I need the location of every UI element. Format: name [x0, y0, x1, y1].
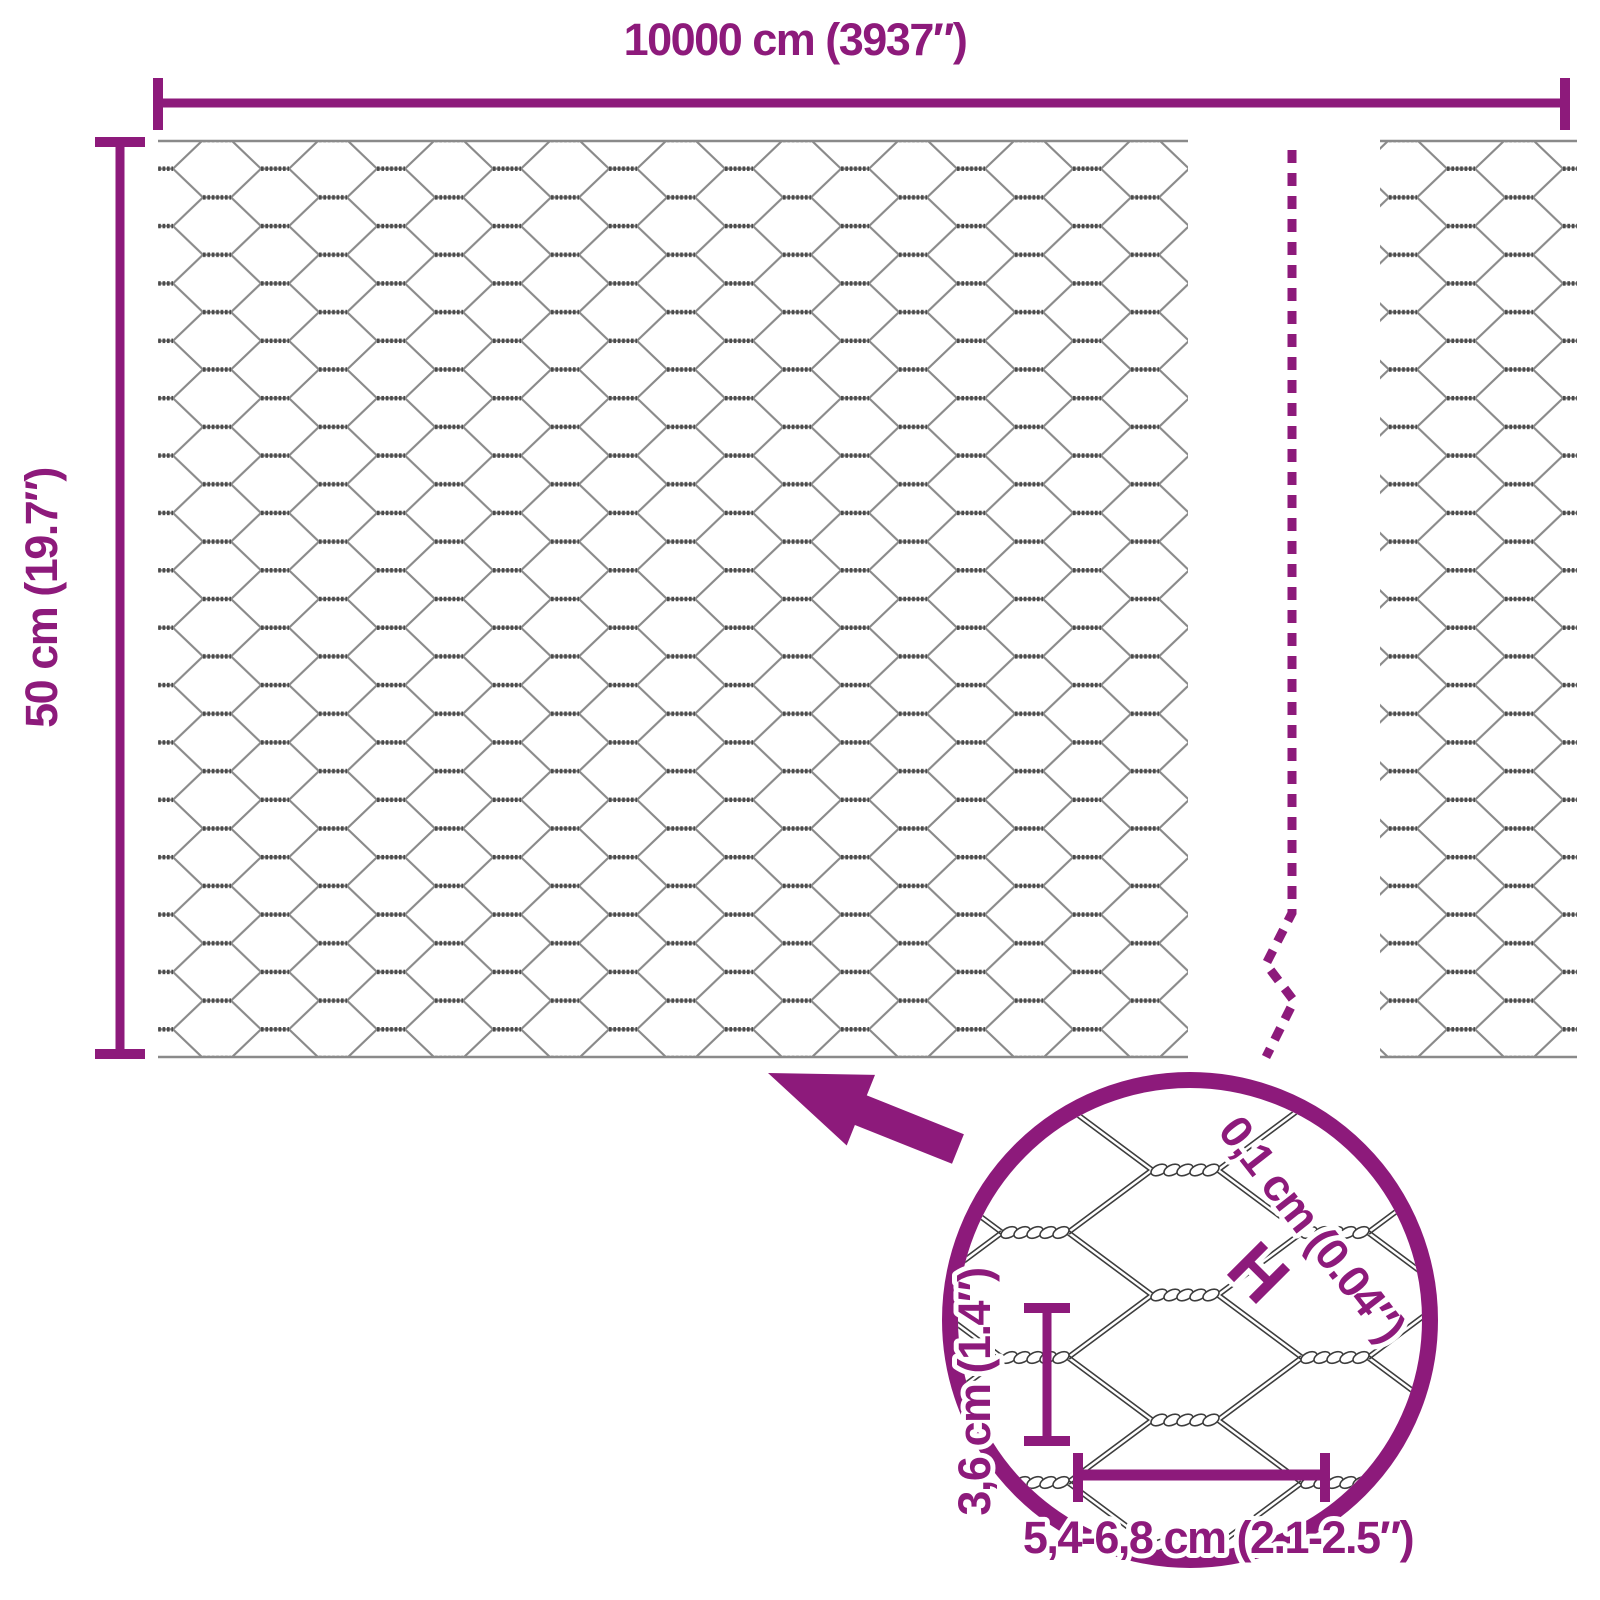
- product-dimension-diagram: 10000 cm (3937″) 50 cm (19.7″) 3,6 cm (1…: [0, 0, 1600, 1600]
- mesh-panel-left: [158, 140, 1188, 1058]
- length-break-line: [1266, 150, 1294, 1057]
- roll-height-label: 50 cm (19.7″): [16, 468, 67, 728]
- mesh-pattern-left: [158, 140, 1188, 1058]
- mesh-width-label: 5,4-6,8 cm (2.1-2.5″): [1023, 1512, 1413, 1563]
- diagram-canvas: 10000 cm (3937″) 50 cm (19.7″) 3,6 cm (1…: [0, 0, 1600, 1600]
- total-width-label: 10000 cm (3937″): [624, 14, 967, 65]
- total-width-dimension: 10000 cm (3937″): [158, 14, 1565, 130]
- mesh-detail-circle: 3,6 cm (1.4″) 5,4-6,8 cm (2.1-2.5″) 0,1 …: [949, 1080, 1430, 1563]
- roll-height-dimension: 50 cm (19.7″): [16, 142, 145, 1054]
- mesh-pattern-right: [1380, 140, 1577, 1058]
- mesh-panel-right: [1380, 140, 1577, 1058]
- mesh-height-label: 3,6 cm (1.4″): [949, 1268, 1000, 1515]
- zoom-pointer-arrow: [768, 1073, 964, 1164]
